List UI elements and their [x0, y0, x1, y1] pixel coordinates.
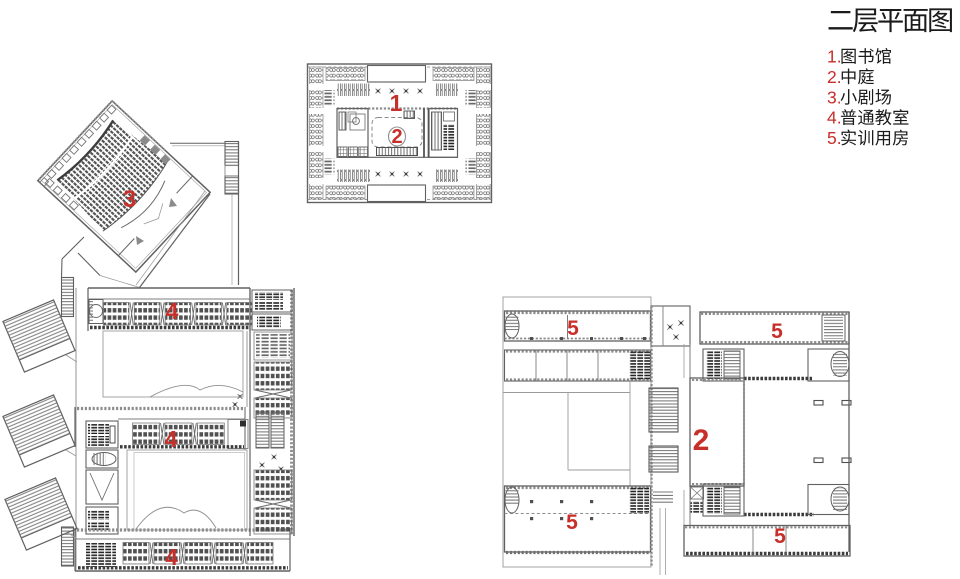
svg-text:2: 2: [391, 126, 402, 148]
svg-text:4: 4: [166, 298, 179, 324]
svg-text:5: 5: [771, 320, 783, 343]
svg-text:4.: 4.: [827, 108, 842, 128]
svg-text:5: 5: [774, 525, 786, 548]
svg-text:4: 4: [165, 544, 178, 570]
svg-text:5: 5: [566, 511, 578, 534]
svg-text:2.: 2.: [827, 67, 842, 87]
svg-text:3.: 3.: [827, 87, 842, 107]
svg-text:5.: 5.: [827, 128, 842, 148]
svg-text:1.: 1.: [827, 47, 842, 67]
svg-text:5: 5: [567, 317, 579, 340]
svg-text:3: 3: [123, 186, 136, 213]
svg-text:1: 1: [390, 90, 403, 116]
svg-text:2: 2: [693, 424, 710, 457]
svg-text:4: 4: [165, 426, 178, 452]
